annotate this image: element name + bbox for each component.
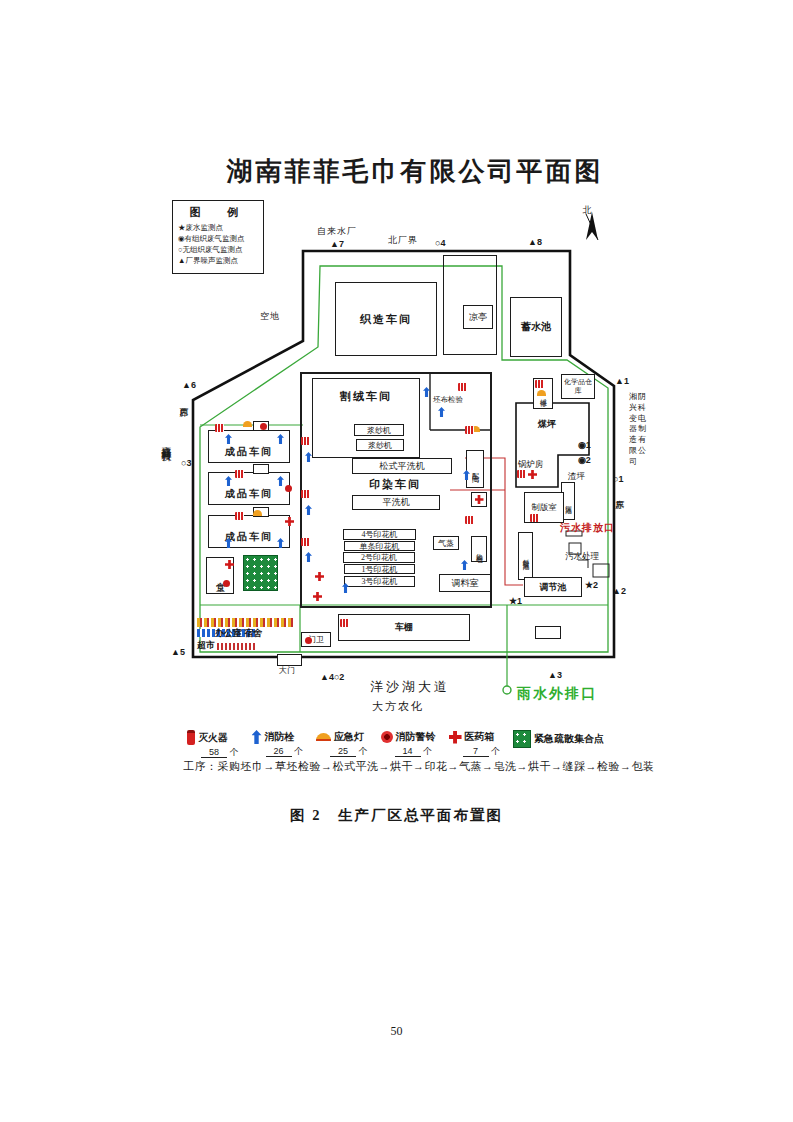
first-aid-icon [475, 495, 484, 504]
noise-point-4-gas-2: ▲4○2 [320, 672, 344, 682]
fire-extinguisher-icon [301, 538, 310, 546]
legend-title: 图 例 [178, 205, 258, 220]
regulating-pool: 调节池 [524, 577, 582, 597]
fire-bell-icon [381, 731, 393, 743]
fire-extinguisher-icon [517, 470, 526, 478]
emergency-light-icon [253, 510, 262, 516]
main-gate-label: 大门 [279, 667, 295, 676]
west-neighbor-label: 嘉盛德材料科技 [159, 438, 173, 445]
monitoring-legend-box: 图 例 ★废水监测点 ◉有组织废气监测点 ○无组织废气监测点 ▲厂界噪声监测点 [172, 200, 264, 274]
reservoir: 蓄水池 [510, 297, 562, 357]
fire-bell-icon [223, 580, 230, 587]
star-icon: ★ [178, 223, 186, 232]
fire-extinguisher-icon [235, 512, 244, 520]
fire-hydrant-icon [252, 730, 262, 744]
pavilion: 凉亭 [463, 305, 493, 329]
power-distribution-room: 配电间 [466, 450, 484, 488]
legend-item-wastewater: ★废水监测点 [178, 223, 258, 234]
north-boundary-label: 北厂界 [388, 234, 418, 247]
noise-point-1: ▲1 [615, 376, 629, 386]
safety-item-emergency-light: 应急灯 25 个 [316, 730, 368, 759]
open-land-label: 空地 [260, 310, 280, 323]
noise-point-5: ▲5 [171, 647, 185, 657]
workshop-connector [253, 464, 269, 474]
printing-machine-single: 单条印花机 [344, 541, 415, 551]
slag-yard-label: 渣坪 [568, 472, 585, 481]
market-label: 超市 [197, 641, 215, 651]
first-aid-icon [449, 731, 462, 744]
fire-bell-icon [285, 485, 292, 492]
dye-workshop-label: 印染车间 [369, 478, 421, 490]
site-plan-figure: 湖南菲菲毛巾有限公司平面图 图 例 ★废水监测点 ◉有组织废气监测点 ○无组织废… [165, 140, 665, 805]
printing-machine-2: 2号印花机 [343, 552, 415, 563]
gas-point-1-east: ○1 [613, 474, 623, 484]
fire-extinguisher-icon [535, 380, 544, 388]
sewage-outfall-label: 污水排放口 [560, 522, 615, 533]
sizing-machine-1: 浆纱机 [354, 424, 404, 436]
organized-gas-point-1: ◉1 [578, 440, 591, 450]
boiler-room-label: 锅炉房 [518, 460, 544, 469]
loose-washing-machine: 松式平洗机 [352, 458, 452, 474]
finished-workshop-3: 成品车间 [208, 515, 290, 548]
south-road-label: 洋沙湖大道 [370, 680, 450, 694]
main-gate [277, 654, 302, 666]
noise-point-7: ▲7 [330, 239, 344, 249]
printing-machine-4: 4号印花机 [343, 529, 416, 540]
legend-item-organized-gas: ◉有组织废气监测点 [178, 234, 258, 245]
fire-extinguisher-icon [215, 424, 224, 432]
safety-item-hydrant: 消防栓 26 个 [252, 730, 304, 759]
east-boundary-label: 东厂界 [613, 492, 626, 495]
weaving-workshop: 织造车间 [335, 282, 437, 356]
wastewater-point-2: ★2 [585, 580, 598, 590]
sizing-machine-2: 浆纱机 [356, 439, 404, 451]
noise-point-2: ▲2 [612, 586, 626, 596]
east-neighbor-label: 湘阴兴科变电器制造有限公司 [629, 392, 647, 468]
assembly-point-icon [243, 555, 278, 591]
wastewater-point-1: ★1 [509, 596, 522, 606]
gas-point-3: ○3 [181, 458, 191, 468]
inclined-sedimentation-pool: 斜管沉淀池 [518, 532, 533, 580]
fire-bell-icon [260, 423, 267, 430]
small-structure [535, 626, 561, 639]
rain-outfall-label: 雨水外排口 [517, 686, 597, 701]
flat-washing-machine: 平洗机 [352, 495, 440, 510]
safety-item-assembly-point: 紧急疏散集合点 [513, 730, 604, 759]
organized-gas-point-2: ◉2 [578, 455, 591, 465]
noise-point-6: ▲6 [182, 380, 196, 390]
fire-extinguisher-icon [340, 619, 349, 627]
printing-machine-1: 1号印花机 [344, 564, 415, 574]
document-page: { "page": { "number": "50", "caption": "… [0, 0, 793, 1122]
process-flow-text: 工序：采购坯巾→草坯检验→松式平洗→烘干→印花→气蒸→皂洗→烘干→缝踩→检验→包… [183, 760, 655, 772]
figure-caption: 图 2 生产厂区总平面布置图 [0, 806, 793, 825]
emergency-light-icon [243, 421, 252, 427]
noise-point-3: ▲3 [548, 670, 562, 680]
dye-storage: 染料仓 [471, 536, 487, 562]
compass: 北 [570, 204, 604, 254]
chemical-warehouse: 化学品仓库 [561, 374, 595, 399]
safety-item-extinguisher: 灭火器 58 个 [187, 730, 239, 759]
fabric-inspection-label: 坯布检验 [433, 396, 463, 404]
printing-machine-3: 3号印花机 [344, 576, 415, 587]
figure-title: 湖南菲菲毛巾有限公司平面图 [165, 158, 665, 187]
west-boundary-label: 西厂界 [177, 400, 190, 403]
office-safety-icons-row [197, 618, 293, 627]
steaming-box: 气蒸 [433, 536, 459, 550]
noise-point-8: ▲8 [528, 237, 542, 247]
fire-extinguisher-icon [235, 470, 244, 478]
water-plant-label: 自来水厂 [317, 225, 357, 238]
legend-item-noise: ▲厂界噪声监测点 [178, 256, 258, 267]
fire-extinguisher-icon [187, 730, 195, 745]
emergency-light-icon [537, 390, 546, 396]
fire-extinguisher-icon [458, 383, 467, 391]
safety-item-fire-bell: 消防警铃 14 个 [381, 730, 436, 759]
page-number: 50 [0, 1024, 793, 1039]
fire-extinguisher-icon [301, 437, 310, 445]
gas-point-4: ○4 [435, 238, 445, 248]
compass-north-label: 北 [583, 205, 592, 215]
market-icons-row [217, 643, 257, 650]
fire-bell-icon [305, 637, 312, 644]
safety-legend: 灭火器 58 个 消防栓 26 个 应急灯 25 个 消防警铃 14 个 医药箱… [187, 730, 657, 759]
fire-extinguisher-icon [301, 490, 310, 498]
rain-outfall-circle [503, 686, 511, 694]
office-dorm-label: 办公室 宿舍 [215, 629, 262, 639]
fire-extinguisher-icon [465, 426, 474, 434]
safety-item-first-aid: 医药箱 7 个 [449, 730, 501, 759]
finished-workshop-2: 成品车间 [208, 472, 290, 505]
fire-extinguisher-icon [530, 514, 539, 522]
coal-yard-label: 煤坪 [538, 420, 556, 430]
sewage-treatment-label: 污水处理 [565, 552, 599, 561]
mixing-room: 调料室 [439, 574, 491, 592]
assembly-point-icon [513, 730, 531, 748]
finished-workshop-1: 成品车间 [208, 430, 290, 463]
fire-extinguisher-icon [465, 516, 474, 524]
legend-item-unorganized-gas: ○无组织废气监测点 [178, 245, 258, 256]
first-aid-box-power [471, 492, 487, 507]
bike-shed: 车棚 [338, 614, 470, 641]
south-neighbor-label: 大方农化 [372, 700, 424, 712]
emergency-light-icon [316, 733, 331, 741]
